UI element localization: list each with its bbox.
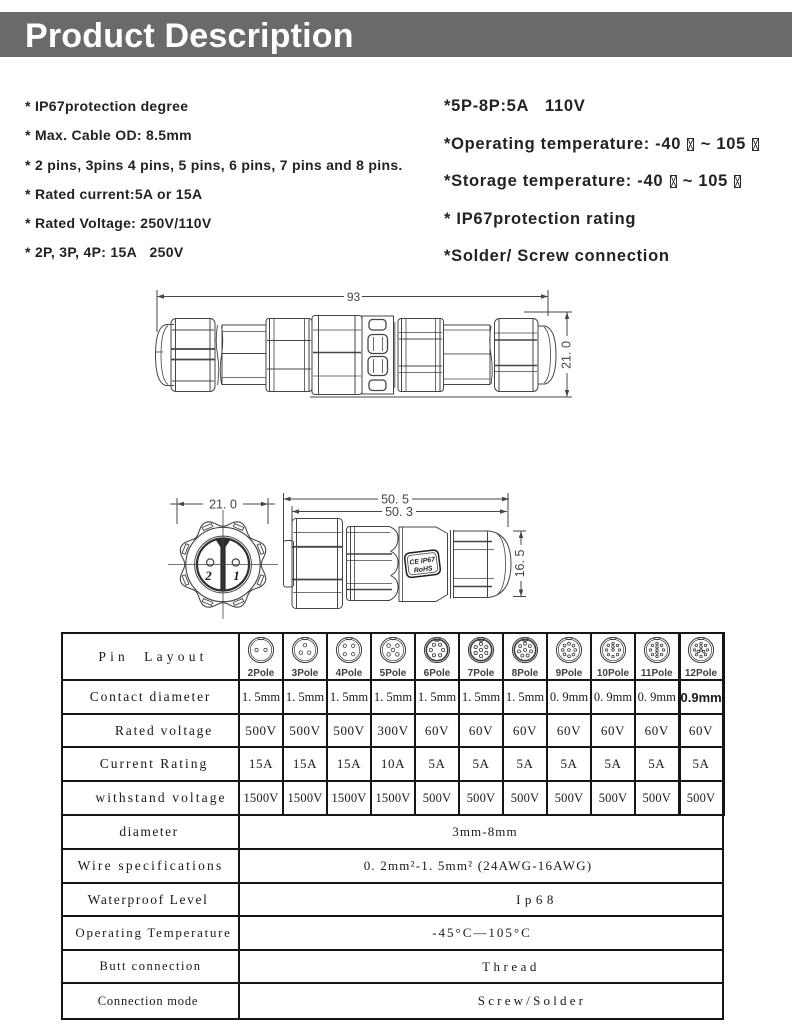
svg-text:RoHS: RoHS <box>414 565 434 574</box>
svg-text:50. 3: 50. 3 <box>385 505 413 519</box>
svg-text:21. 0: 21. 0 <box>560 341 574 369</box>
svg-text:93: 93 <box>347 290 361 304</box>
svg-text:CE IP67: CE IP67 <box>409 556 436 566</box>
svg-text:16. 5: 16. 5 <box>513 550 527 578</box>
svg-text:21. 0: 21. 0 <box>209 498 237 512</box>
svg-text:2: 2 <box>204 568 212 583</box>
svg-text:1: 1 <box>233 568 240 583</box>
